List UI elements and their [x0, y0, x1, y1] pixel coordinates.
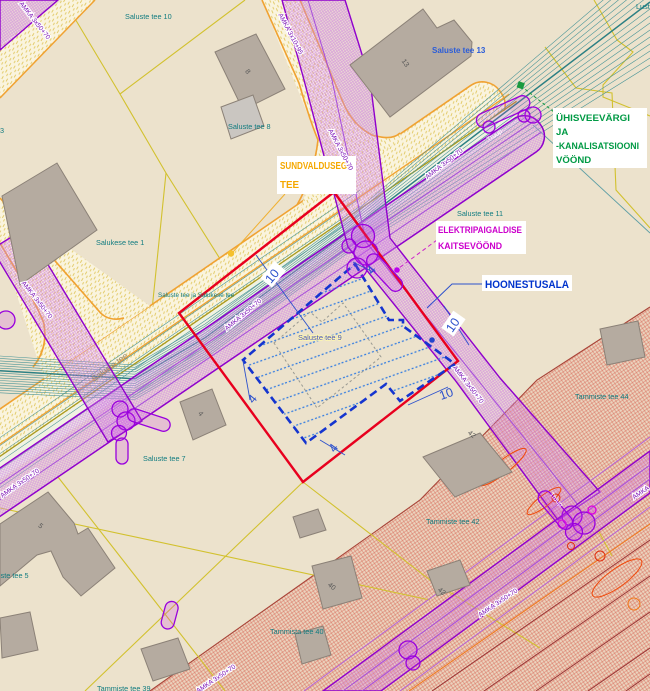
- svg-text:Saluste tee 13: Saluste tee 13: [432, 46, 486, 55]
- svg-text:JA: JA: [556, 127, 568, 138]
- svg-text:Saluste tee 8: Saluste tee 8: [228, 122, 271, 131]
- svg-text:Tammiste tee 42: Tammiste tee 42: [426, 517, 480, 526]
- svg-text:ELEKTRIPAIGALDISE: ELEKTRIPAIGALDISE: [438, 225, 522, 235]
- svg-text:Tammiste tee 44: Tammiste tee 44: [575, 392, 629, 401]
- svg-text:-KANALISATSIOONI: -KANALISATSIOONI: [556, 141, 639, 152]
- svg-text:HOONESTUSALA: HOONESTUSALA: [485, 279, 569, 291]
- svg-text:Saluste tee 9: Saluste tee 9: [298, 333, 342, 342]
- svg-text:Lust: Lust: [636, 2, 650, 11]
- svg-text:Salukese tee 1: Salukese tee 1: [96, 238, 144, 247]
- svg-text:KAITSEVÖÖND: KAITSEVÖÖND: [438, 241, 502, 251]
- svg-text:Saluste tee 7: Saluste tee 7: [143, 454, 186, 463]
- svg-text:Saluste tee 5: Saluste tee 5: [0, 571, 29, 580]
- svg-text:Saluste tee 11: Saluste tee 11: [457, 209, 503, 218]
- svg-text:Saluste tee ja Salukese tee: Saluste tee ja Salukese tee: [158, 292, 235, 299]
- svg-text:ÜHISVEEVÄRGI: ÜHISVEEVÄRGI: [556, 113, 630, 124]
- svg-text:SUNDVALDUSEGA: SUNDVALDUSEGA: [280, 161, 353, 172]
- svg-text:Tammista tee 40: Tammista tee 40: [270, 627, 324, 636]
- svg-text:Saluste tee 10: Saluste tee 10: [125, 12, 172, 21]
- svg-text:VÖÖND: VÖÖND: [556, 155, 591, 166]
- svg-text:3: 3: [0, 126, 4, 135]
- svg-text:Tammiste tee 39: Tammiste tee 39: [97, 684, 151, 691]
- svg-text:TEE: TEE: [280, 180, 300, 191]
